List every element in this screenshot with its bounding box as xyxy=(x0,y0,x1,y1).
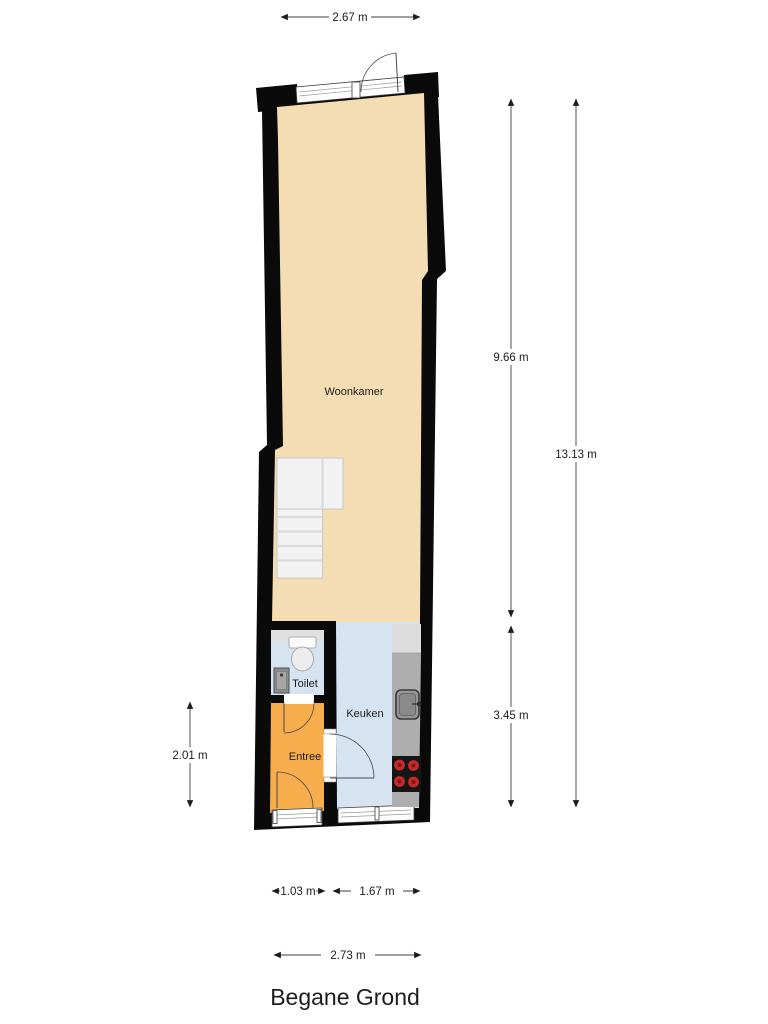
dimension-left-entree: 2.01 m xyxy=(166,702,214,807)
kitchen-sink-icon xyxy=(396,690,421,719)
dimension-bottom-total-label: 2.73 m xyxy=(330,950,365,962)
window-divider-top xyxy=(352,82,360,98)
stairs-landing xyxy=(277,458,343,509)
kitchen-window-divider xyxy=(375,807,379,820)
dimension-right-upper: 9.66 m xyxy=(487,99,535,617)
room-label-entree: Entree xyxy=(289,751,321,763)
room-label-woonkamer: Woonkamer xyxy=(324,386,383,398)
dimension-right-lower-label: 3.45 m xyxy=(493,710,528,722)
dimension-right-total-label: 13.13 m xyxy=(555,449,597,461)
page-title: Begane Grond xyxy=(270,984,420,1010)
dimension-bottom-entree-label: 1.03 m xyxy=(280,886,315,898)
dimension-left-entree-label: 2.01 m xyxy=(172,750,207,762)
front-door-jamb-left xyxy=(273,811,277,824)
floorplan-drawing: Woonkamer Toilet Keuken Entree 2.67 m 9.… xyxy=(0,0,768,1024)
dimension-top-width: 2.67 m xyxy=(281,12,420,24)
floorplan-page: Woonkamer Toilet Keuken Entree 2.67 m 9.… xyxy=(0,0,768,1024)
counter-upper xyxy=(392,624,421,653)
burner-4-center xyxy=(412,780,416,784)
wall-divider-vertical xyxy=(324,621,336,811)
kitchen-window-assembly xyxy=(338,805,414,823)
dimension-bottom-keuken: 1.67 m xyxy=(333,886,420,898)
hand-basin-tap xyxy=(280,673,283,676)
opening-toilet-door xyxy=(284,694,314,704)
sink-tap xyxy=(417,702,422,707)
toilet-cistern xyxy=(289,637,316,648)
burner-2-center xyxy=(412,764,416,768)
dimension-right-upper-label: 9.66 m xyxy=(493,352,528,364)
dimension-bottom-entree: 1.03 m xyxy=(272,886,325,898)
room-label-keuken: Keuken xyxy=(346,708,383,720)
room-label-toilet: Toilet xyxy=(292,678,318,690)
stairs-steps xyxy=(277,509,323,578)
dimension-top-width-label: 2.67 m xyxy=(332,12,367,24)
hand-basin-icon xyxy=(274,668,289,693)
burner-3-center xyxy=(398,780,402,784)
toilet-bowl-icon xyxy=(289,637,316,671)
opening-keuken-door xyxy=(324,733,337,778)
toilet-bowl xyxy=(292,647,314,671)
dimension-bottom-total: 2.73 m xyxy=(274,950,421,962)
front-door-jamb-right xyxy=(317,810,321,823)
dimension-right-lower: 3.45 m xyxy=(487,626,535,807)
dimension-right-total: 13.13 m xyxy=(549,99,603,807)
burner-1-center xyxy=(398,763,402,767)
dimension-bottom-keuken-label: 1.67 m xyxy=(359,886,394,898)
jamb-keuken-door-top xyxy=(324,729,336,734)
cooktop-icon xyxy=(392,756,421,792)
